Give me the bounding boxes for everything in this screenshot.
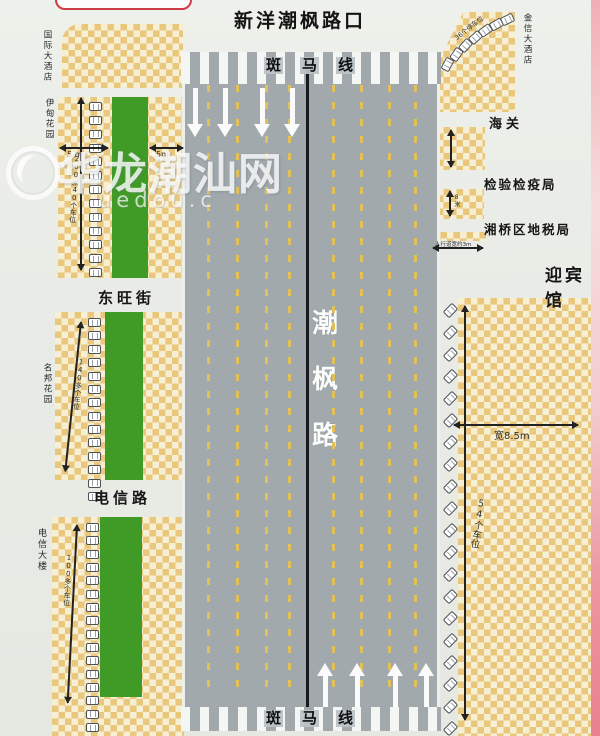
dim-label-block-height: 8米 (452, 194, 461, 216)
street-label-dianxin: 电信路 (94, 487, 151, 508)
green-strip-3 (100, 517, 142, 697)
car-icon (443, 611, 459, 627)
car-icon (443, 677, 459, 693)
photo-edge (591, 0, 600, 736)
car-icon (443, 479, 459, 495)
parking-block-3 (52, 517, 184, 736)
car-icon (443, 391, 459, 407)
building-label-international-hotel: 国际大酒店 (41, 30, 53, 104)
car-icon (443, 523, 459, 539)
map-title: 新洋潮枫路口 (0, 6, 600, 33)
car-icon (443, 633, 459, 649)
road-surface (185, 52, 437, 731)
customs-frontage-block (437, 127, 485, 170)
green-strip-2 (105, 312, 143, 480)
car-icon (443, 457, 459, 473)
car-icon (443, 369, 459, 385)
sidewalk-block-top-left (62, 24, 183, 88)
road-name-label: 潮 枫 路 (312, 303, 338, 452)
zebra-label-bottom: 斑 马 线 (264, 710, 355, 727)
street-label-dongwang: 东旺街 (98, 287, 155, 308)
road-plan-map: 新洋潮枫路口 斑 马 线 斑 马 线 潮 枫 路 国际大酒店 伊甸花园 名邦花园… (0, 0, 600, 736)
car-icon (443, 721, 459, 736)
road-center-line (306, 64, 309, 707)
car-icon (443, 589, 459, 605)
car-icon (443, 545, 459, 561)
dim-label-sidewalk-width: 人行道宽约3m (435, 240, 471, 248)
car-icon (443, 501, 459, 517)
car-icon (443, 303, 459, 319)
watermark-logo-icon (6, 146, 60, 200)
cropped-red-frame (55, 0, 192, 10)
car-icon (443, 325, 459, 341)
zebra-label-top: 斑 马 线 (264, 57, 355, 74)
car-icon (443, 567, 459, 583)
building-label-telecom-building: 电信大楼 (35, 528, 48, 586)
dim-label-width-8-5m: 宽8.5m (494, 427, 530, 442)
car-icon (443, 413, 459, 429)
building-label-mingbang-garden: 名邦花园 (41, 363, 53, 411)
road-edge-right (437, 52, 440, 731)
dim-label-5m-right: 5m (156, 150, 169, 159)
label-customs: 海关 (489, 113, 523, 132)
label-quarantine-bureau: 检验检疫局 (484, 174, 557, 193)
car-icon (443, 655, 459, 671)
car-icon (443, 347, 459, 363)
green-strip-1 (112, 97, 148, 278)
road-edge-left (182, 52, 185, 731)
building-label-eden-garden: 伊甸花园 (43, 98, 55, 142)
label-tax-bureau: 湘桥区地税局 (484, 219, 571, 238)
car-icon (443, 699, 459, 715)
car-icon (443, 435, 459, 451)
